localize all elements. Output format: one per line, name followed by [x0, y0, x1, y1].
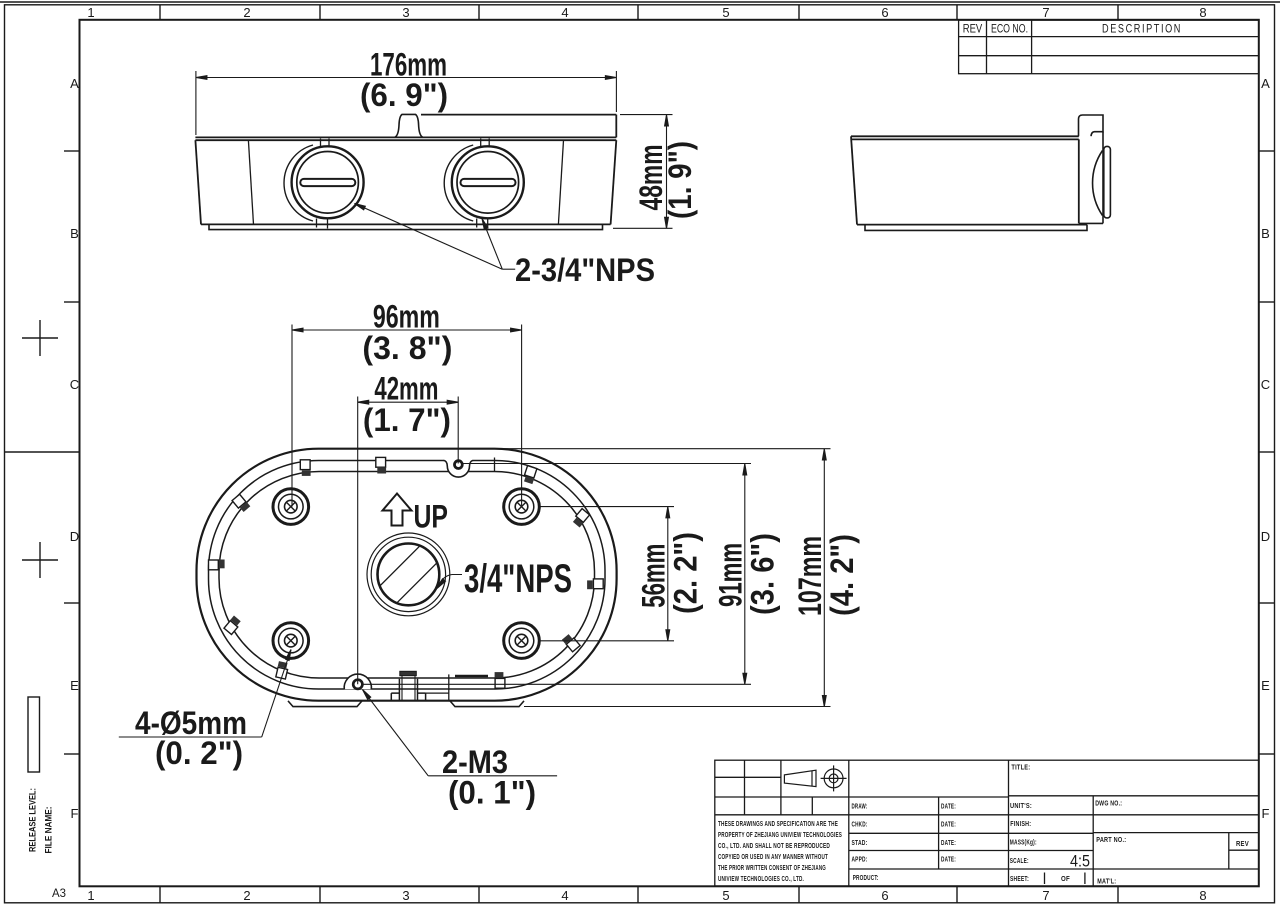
svg-text:8: 8: [1199, 888, 1206, 903]
svg-text:DATE:: DATE:: [941, 820, 956, 829]
svg-text:SCALE:: SCALE:: [1010, 856, 1029, 865]
svg-text:8: 8: [1199, 5, 1206, 20]
svg-text:DATE:: DATE:: [941, 855, 956, 864]
svg-text:UNIT'S:: UNIT'S:: [1010, 801, 1032, 810]
svg-text:E: E: [70, 678, 79, 693]
svg-text:5: 5: [722, 5, 729, 20]
svg-text:4: 4: [561, 5, 568, 20]
svg-text:REV: REV: [963, 24, 983, 36]
svg-text:D: D: [70, 529, 79, 544]
svg-text:1: 1: [87, 5, 94, 20]
svg-text:2-3/4"NPS: 2-3/4"NPS: [515, 252, 655, 288]
svg-text:7: 7: [1042, 5, 1049, 20]
svg-text:D: D: [1261, 529, 1270, 544]
svg-text:A: A: [1261, 76, 1270, 91]
svg-text:APPD:: APPD:: [852, 855, 868, 864]
svg-text:3: 3: [402, 888, 409, 903]
svg-text:UNIVIEW TECHNOLOGIES CO., LTD.: UNIVIEW TECHNOLOGIES CO., LTD.: [718, 874, 804, 883]
svg-text:2: 2: [243, 5, 250, 20]
svg-text:MASS(Kg):: MASS(Kg):: [1010, 838, 1037, 847]
svg-text:(6. 9"): (6. 9"): [360, 77, 448, 113]
svg-text:PROPERTY OF ZHEJIANG UNIVIEW T: PROPERTY OF ZHEJIANG UNIVIEW TECHNOLOGIE…: [718, 830, 842, 839]
svg-text:UP: UP: [414, 499, 449, 535]
svg-text:DATE:: DATE:: [941, 802, 956, 811]
svg-text:F: F: [71, 806, 79, 821]
svg-text:DWG NO.:: DWG NO.:: [1095, 799, 1122, 808]
svg-text:DESCRIPTION: DESCRIPTION: [1102, 24, 1182, 36]
svg-text:REV: REV: [1236, 839, 1249, 848]
svg-text:A3: A3: [52, 886, 66, 900]
svg-text:CO., LTD. AND SHALL NOT BE REP: CO., LTD. AND SHALL NOT BE REPRODUCED: [718, 841, 830, 850]
svg-text:RELEASE LEVEL:: RELEASE LEVEL:: [28, 788, 39, 852]
svg-text:(0. 2"): (0. 2"): [155, 735, 243, 771]
svg-text:(3. 6"): (3. 6"): [745, 533, 781, 615]
svg-text:C: C: [1261, 377, 1270, 392]
svg-text:6: 6: [881, 888, 888, 903]
svg-text:(3. 8"): (3. 8"): [362, 330, 452, 366]
svg-text:THE PRIOR WRITTEN CONSENT OF Z: THE PRIOR WRITTEN CONSENT OF ZHEJIANG: [718, 863, 826, 872]
svg-text:91mm: 91mm: [713, 543, 749, 607]
svg-text:7: 7: [1042, 888, 1049, 903]
svg-text:107mm: 107mm: [792, 536, 828, 616]
svg-text:B: B: [1261, 226, 1270, 241]
svg-text:B: B: [70, 226, 79, 241]
svg-text:C: C: [70, 377, 79, 392]
svg-text:A: A: [70, 76, 79, 91]
svg-text:(4. 2"): (4. 2"): [824, 534, 860, 616]
svg-text:CHKD:: CHKD:: [852, 820, 868, 829]
svg-text:4:5: 4:5: [1070, 852, 1090, 871]
svg-text:3/4"NPS: 3/4"NPS: [464, 557, 572, 601]
svg-text:ECO NO.: ECO NO.: [991, 24, 1028, 36]
svg-text:(1. 7"): (1. 7"): [363, 402, 451, 438]
svg-text:TITLE:: TITLE:: [1011, 763, 1030, 772]
svg-text:FINISH:: FINISH:: [1010, 819, 1031, 828]
svg-text:SHEET:: SHEET:: [1010, 874, 1029, 883]
svg-text:F: F: [1262, 806, 1270, 821]
svg-text:PRODUCT:: PRODUCT:: [853, 873, 879, 882]
svg-text:(2. 2"): (2. 2"): [668, 532, 704, 614]
svg-text:1: 1: [87, 888, 94, 903]
svg-text:6: 6: [881, 5, 888, 20]
svg-text:(0. 1"): (0. 1"): [448, 775, 536, 811]
svg-text:FILE NAME:: FILE NAME:: [44, 807, 55, 854]
svg-text:DATE:: DATE:: [941, 838, 956, 847]
svg-text:4: 4: [561, 888, 568, 903]
svg-text:3: 3: [402, 5, 409, 20]
svg-text:5: 5: [722, 888, 729, 903]
svg-text:PART NO.:: PART NO.:: [1096, 835, 1126, 844]
svg-text:COPYIED OR USED IN ANY MANNER: COPYIED OR USED IN ANY MANNER WITHOUT: [718, 852, 828, 861]
svg-text:(1. 9"): (1. 9"): [662, 141, 698, 219]
svg-text:THESE DRAWINGS AND SPECIFICATI: THESE DRAWINGS AND SPECIFICATION ARE THE: [718, 819, 838, 828]
svg-text:DRAW:: DRAW:: [852, 802, 868, 811]
svg-text:2: 2: [243, 888, 250, 903]
svg-text:OF: OF: [1061, 874, 1070, 883]
svg-text:STAD:: STAD:: [852, 838, 868, 847]
svg-text:MAT'L:: MAT'L:: [1097, 876, 1116, 885]
svg-text:56mm: 56mm: [636, 544, 672, 608]
svg-text:E: E: [1261, 678, 1270, 693]
